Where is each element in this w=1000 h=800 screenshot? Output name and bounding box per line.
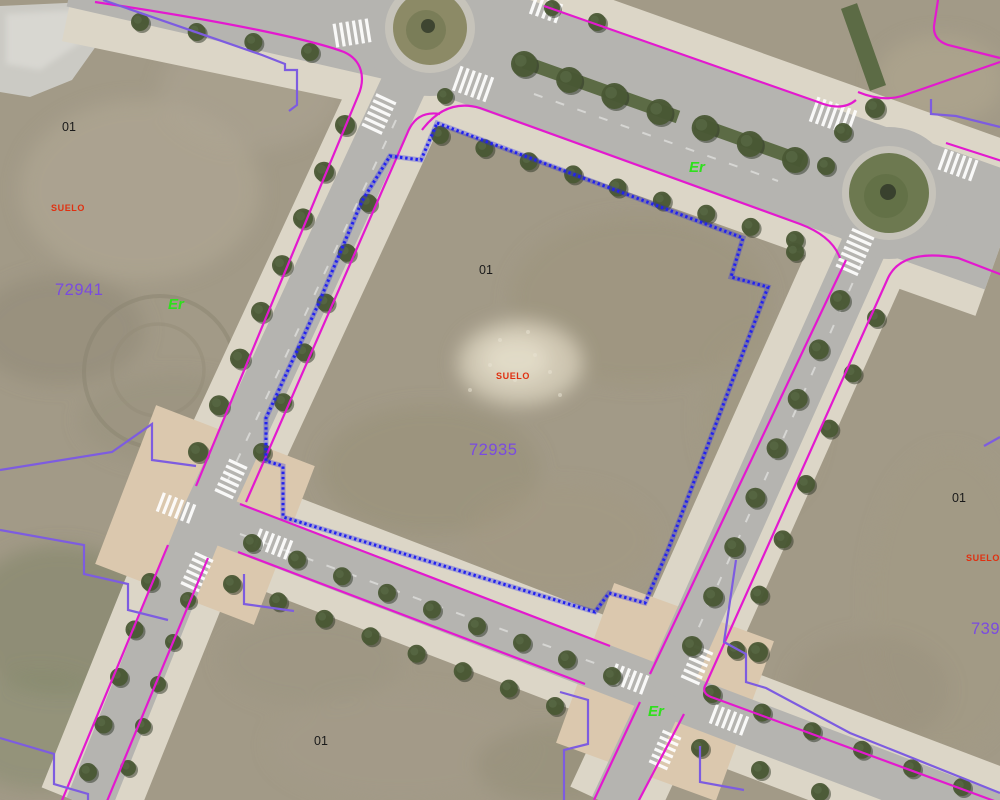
roundabout-tree: [421, 19, 435, 33]
suelo-label: SUELO: [496, 371, 530, 381]
er-label: Er: [168, 296, 185, 313]
aerial-map: 01 SUELO 72941 Er 01 SUELO 72935 Er 01 S…: [0, 0, 1000, 800]
suelo-label: SUELO: [51, 203, 85, 213]
parcel-code-label: 01: [479, 263, 493, 277]
roundabout-east: [823, 127, 955, 259]
parcel-refnum-label: 72941: [55, 281, 103, 299]
suelo-label: SUELO: [966, 553, 1000, 563]
er-label: Er: [648, 703, 665, 720]
parcel-refnum-label: 72935: [469, 441, 517, 459]
parcel-refnum-label: 7393: [971, 620, 1000, 638]
roundabout-tree: [880, 184, 896, 200]
map-viewport[interactable]: 01 SUELO 72941 Er 01 SUELO 72935 Er 01 S…: [0, 0, 1000, 800]
er-label: Er: [689, 159, 706, 176]
parcel-code-label: 01: [314, 734, 328, 748]
parcel-code-label: 01: [62, 120, 76, 134]
parcel-code-label: 01: [952, 491, 966, 505]
